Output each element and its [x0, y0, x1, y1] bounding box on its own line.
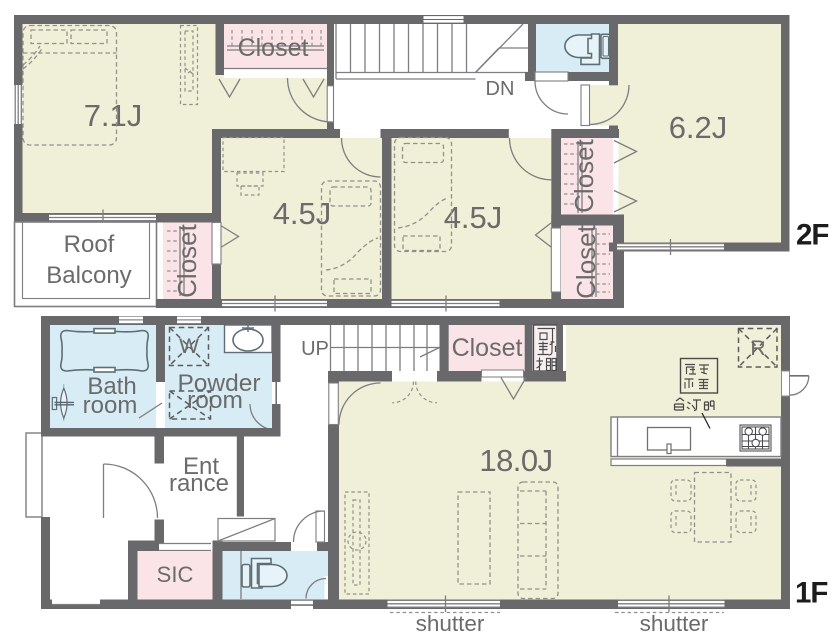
- svg-text:DN: DN: [486, 78, 515, 100]
- svg-text:1F: 1F: [795, 577, 827, 610]
- svg-text:R: R: [750, 337, 765, 360]
- svg-text:Closet: Closet: [452, 334, 523, 362]
- svg-text:18.0J: 18.0J: [479, 443, 552, 478]
- svg-text:Closet: Closet: [571, 224, 601, 298]
- svg-text:Balcony: Balcony: [46, 262, 131, 289]
- svg-text:shutter: shutter: [640, 611, 709, 636]
- svg-text:Closet: Closet: [569, 138, 599, 212]
- svg-text:Closet: Closet: [172, 223, 202, 297]
- svg-text:Roof: Roof: [64, 231, 115, 258]
- svg-text:room: room: [83, 392, 138, 419]
- svg-text:7.1J: 7.1J: [84, 98, 143, 133]
- svg-text:4.5J: 4.5J: [444, 200, 503, 235]
- svg-text:SIC: SIC: [157, 562, 194, 587]
- svg-text:W: W: [179, 335, 199, 358]
- svg-text:Closet: Closet: [238, 34, 309, 62]
- svg-text:2F: 2F: [796, 219, 828, 252]
- svg-text:6.2J: 6.2J: [669, 110, 728, 145]
- svg-text:shutter: shutter: [416, 611, 485, 636]
- svg-text:4.5J: 4.5J: [273, 196, 332, 231]
- svg-text:rance: rance: [169, 470, 229, 497]
- svg-text:UP: UP: [301, 338, 329, 360]
